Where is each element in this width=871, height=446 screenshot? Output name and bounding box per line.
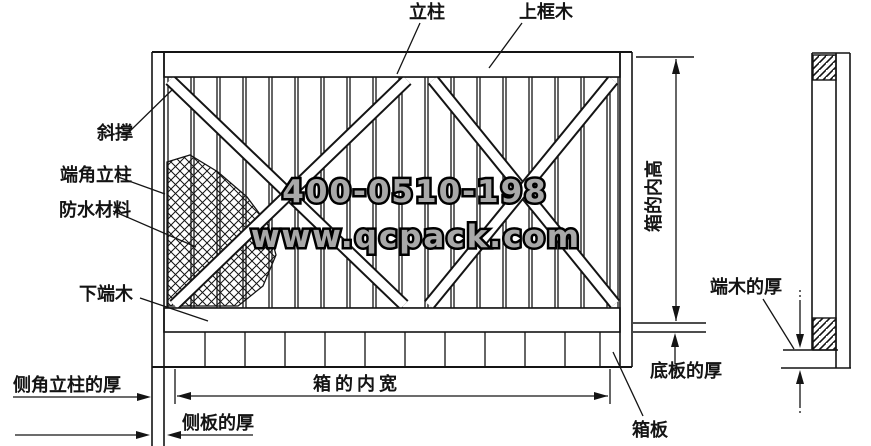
diagram-canvas: 立柱 上框木 斜撑 端角立柱 防水材料 下端木 侧角立柱的厚 侧板的厚 箱的内宽…: [0, 0, 871, 446]
label-top-frame-wood: 上框木: [519, 1, 574, 23]
label-vertical-post: 立柱: [409, 1, 445, 23]
label-side-plank-thickness: 侧板的厚: [182, 412, 254, 434]
label-end-corner-post: 端角立柱: [60, 164, 132, 186]
label-side-corner-post-thickness: 侧角立柱的厚: [13, 374, 121, 396]
label-diagonal-brace: 斜撑: [96, 122, 133, 144]
bottom-end-wood-band: [164, 308, 620, 332]
side-section: [781, 53, 851, 368]
label-waterproof-material: 防水材料: [59, 199, 131, 221]
bottom-frame-section-hatch: [813, 318, 836, 350]
crate-construction-diagram: 立柱 上框木 斜撑 端角立柱 防水材料 下端木 侧角立柱的厚 侧板的厚 箱的内宽…: [0, 0, 871, 446]
label-bottom-plank-thickness: 底板的厚: [650, 360, 722, 382]
label-box-plank: 箱板: [632, 419, 669, 441]
top-frame-section-hatch: [813, 55, 836, 80]
label-end-wood-thickness: 端木的厚: [710, 276, 782, 298]
top-frame-band: [164, 52, 620, 77]
bottom-plank-strip: [205, 332, 600, 367]
label-box-inner-width: 箱的内宽: [313, 373, 401, 395]
watermark-phone: 400-0510-198: [282, 174, 547, 210]
label-bottom-end-wood: 下端木: [79, 283, 134, 305]
watermark-website: www.qcpack.com: [251, 219, 581, 255]
label-box-inner-height: 箱的内高: [643, 160, 665, 232]
